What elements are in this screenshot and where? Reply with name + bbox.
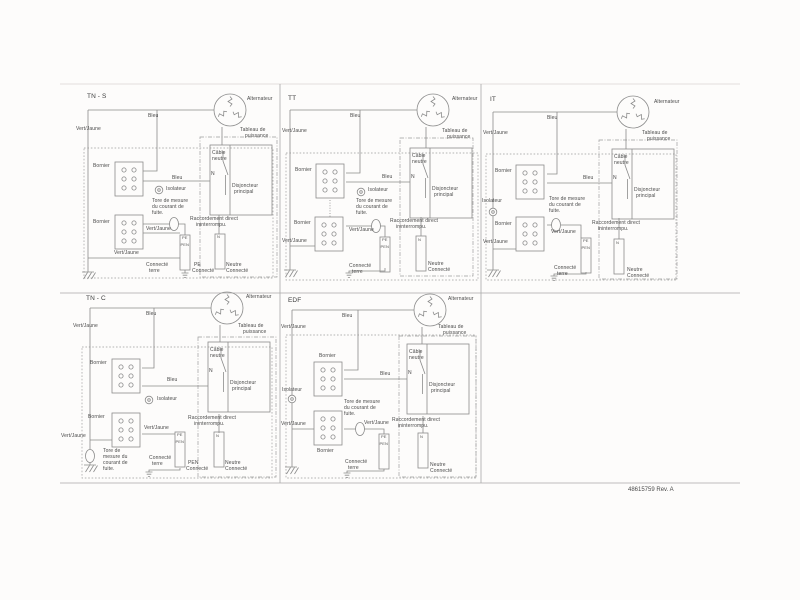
n-bar-label: N <box>616 241 619 245</box>
label-bleu: Bleu <box>146 312 156 318</box>
breaker-n-label: N <box>211 172 215 178</box>
pe-bar-label: PE <box>583 239 589 243</box>
label-vert-jaune: Vert/Jaune <box>281 325 306 331</box>
earth-icon <box>285 467 299 474</box>
n-bar-label: N <box>216 434 219 438</box>
cable-neutre-line2: neutre <box>212 157 227 163</box>
panel-title: TN - S <box>87 94 106 100</box>
breaker-label-line2: principal <box>232 387 252 393</box>
document-number: 48615759 Rev. A <box>628 487 674 493</box>
neutre-connecte-line2: Connecté <box>225 467 247 473</box>
label-vert-jaune: Vert/Jaune <box>483 240 508 246</box>
panel-tn-s: TN - S Alternateur Bleu Vert/Jaune Table… <box>60 84 280 293</box>
label-vert-jaune: Vert/Jaune <box>281 422 306 428</box>
bornier-label: Bornier <box>295 168 312 174</box>
label-vert-jaune: Vert/Jaune <box>483 131 508 137</box>
connecte-terre-line2: terre <box>152 462 163 468</box>
label-bleu: Bleu <box>382 175 392 181</box>
panel-tt: TT Alternateur Bleu Vert/Jaune Tableau d… <box>280 84 481 293</box>
connecte-terre-line2: terre <box>352 270 363 276</box>
bornier-label: Bornier <box>93 220 110 226</box>
raccordement-line2: ininterrompu. <box>398 424 428 430</box>
pe-bar-label: PE <box>177 433 183 437</box>
neutre-connecte-line2: Connecté <box>226 269 248 275</box>
pen-bar-label: PEN <box>381 245 390 249</box>
raccordement-line2: ininterrompu. <box>598 227 628 233</box>
panel-title: IT <box>490 97 496 103</box>
panel-title: TT <box>288 96 296 102</box>
alternator-icon <box>417 94 449 126</box>
label-bleu: Bleu <box>583 176 593 182</box>
installation-boundary <box>286 153 478 280</box>
isolator-label: Isolateur <box>482 199 502 205</box>
label-vert-jaune: Vert/Jaune <box>61 434 86 440</box>
terminal-block-icon <box>316 164 344 198</box>
label-bleu: Bleu <box>380 372 390 378</box>
cable-neutre-line2: neutre <box>412 160 427 166</box>
tableau-label-line2: puissance <box>243 330 266 336</box>
breaker-label-line2: principal <box>234 190 254 196</box>
wires <box>493 112 626 276</box>
isolator-label: Isolateur <box>157 397 177 403</box>
label-vert-jaune: Vert/Jaune <box>146 227 171 233</box>
alternator-icon <box>211 292 243 324</box>
toroid-label-line3: fuite. <box>152 211 163 217</box>
terminal-block-icon <box>115 162 143 196</box>
wires <box>88 110 222 273</box>
panel-edf: EDF Alternateur Bleu Vert/Jaune Tableau … <box>280 293 481 483</box>
pe-bar-icon <box>180 235 190 270</box>
toroid-label-line3: fuite. <box>344 412 355 418</box>
n-bar-label: N <box>217 235 220 239</box>
terminal-block-icon <box>112 413 140 447</box>
isolator-label: Isolateur <box>166 187 186 193</box>
it-drawing <box>481 84 740 293</box>
isolator-icon <box>288 395 296 403</box>
breaker-n-label: N <box>408 371 412 377</box>
pen-bar-icon <box>175 432 185 467</box>
terminal-block-icon <box>115 215 143 249</box>
ground-icon <box>182 273 189 277</box>
label-bleu: Bleu <box>342 314 352 320</box>
alternator-icon <box>617 96 649 128</box>
pe-bar-label: PE <box>382 238 388 242</box>
label-bleu: Bleu <box>172 176 182 182</box>
raccordement-line2: ininterrompu. <box>196 223 226 229</box>
panel-title: EDF <box>288 298 301 304</box>
connecte-terre-line2: terre <box>557 272 568 278</box>
alternator-label: Alternateur <box>654 100 680 106</box>
tableau-label-line2: puissance <box>647 137 670 143</box>
earth-icon <box>84 465 98 472</box>
neutre-connecte-line2: Connecté <box>430 469 452 475</box>
terminal-block-icon <box>314 411 342 445</box>
ground-icon <box>344 473 351 477</box>
tableau-box <box>400 138 473 276</box>
label-bleu: Bleu <box>167 378 177 384</box>
n-bar-label: N <box>420 435 423 439</box>
toroid-icon <box>86 450 95 463</box>
alternator-icon <box>414 294 446 326</box>
schematic-sheet: TN - S Alternateur Bleu Vert/Jaune Table… <box>0 0 800 600</box>
tableau-label-line2: puissance <box>443 331 466 337</box>
pe-bar-label: PE <box>381 435 387 439</box>
breaker-label-line2: principal <box>636 194 656 200</box>
isolator-icon <box>357 188 365 196</box>
isolator-label: Isolateur <box>282 388 302 394</box>
bornier-label: Bornier <box>93 164 110 170</box>
connecte-terre-line2: terre <box>348 466 359 472</box>
isolator-icon <box>155 186 163 194</box>
pen-bar-label: PEN <box>176 440 185 444</box>
installation-boundary <box>84 148 273 278</box>
label-vert-jaune: Vert/Jaune <box>349 228 374 234</box>
tableau-label-line2: puissance <box>245 134 268 140</box>
bornier-label: Bornier <box>317 449 334 455</box>
alternator-label: Alternateur <box>452 97 478 103</box>
alternator-label: Alternateur <box>448 297 474 303</box>
terminal-block-icon <box>516 165 544 199</box>
label-vert-jaune: Vert/Jaune <box>114 251 139 257</box>
pen-bar-label: PEN <box>380 442 389 446</box>
tableau-label-line2: puissance <box>447 135 470 141</box>
label-bleu: Bleu <box>148 114 158 120</box>
cable-neutre-line2: neutre <box>409 356 424 362</box>
n-bar-label: N <box>418 238 421 242</box>
bornier-label: Bornier <box>294 221 311 227</box>
breaker-n-label: N <box>411 175 415 181</box>
label-vert-jaune: Vert/Jaune <box>282 129 307 135</box>
pe-bar-icon <box>581 238 591 273</box>
panel-it: IT Alternateur Bleu Vert/Jaune Tableau d… <box>481 84 740 293</box>
ground-icon <box>146 472 153 476</box>
alternator-label: Alternateur <box>246 295 272 301</box>
toroid-label-line4: fuite. <box>103 467 114 473</box>
alternator-label: Alternateur <box>247 97 273 103</box>
pen-bar-label: PEN <box>181 243 190 247</box>
terminal-block-icon <box>516 217 544 251</box>
isolator-label: Isolateur <box>368 188 388 194</box>
label-vert-jaune: Vert/Jaune <box>364 421 389 427</box>
breaker-label-line2: principal <box>431 389 451 395</box>
pen-connecte-line2: Connecté <box>186 467 208 473</box>
alternator-icon <box>214 94 246 126</box>
connecte-terre-line2: terre <box>149 269 160 275</box>
neutre-connecte-line2: Connecté <box>627 274 649 280</box>
bornier-label: Bornier <box>88 415 105 421</box>
pe-bar-icon <box>379 434 389 469</box>
cable-neutre-line2: neutre <box>210 354 225 360</box>
pe-bar-icon <box>380 237 390 272</box>
raccordement-line2: ininterrompu. <box>194 422 224 428</box>
label-vert-jaune: Vert/Jaune <box>76 127 101 133</box>
neutral-bar-icon <box>215 234 225 269</box>
bornier-label: Bornier <box>495 222 512 228</box>
label-vert-jaune: Vert/Jaune <box>144 426 169 432</box>
pe-bar-label: PE <box>182 236 188 240</box>
label-vert-jaune: Vert/Jaune <box>73 324 98 330</box>
wires <box>292 310 423 473</box>
toroid-label-line3: fuite. <box>356 211 367 217</box>
raccordement-line2: ininterrompu. <box>396 225 426 231</box>
terminal-block-icon <box>112 359 140 393</box>
pe-connecte-line2: Connecté <box>192 269 214 275</box>
label-vert-jaune: Vert/Jaune <box>551 230 576 236</box>
neutre-connecte-line2: Connecté <box>428 268 450 274</box>
toroid-label-line3: fuite. <box>549 209 560 215</box>
bornier-label: Bornier <box>319 354 336 360</box>
pen-bar-label: PEN <box>582 246 591 250</box>
cable-neutre-line2: neutre <box>614 161 629 167</box>
terminal-block-icon <box>314 362 342 396</box>
terminal-block-icon <box>315 217 343 251</box>
label-vert-jaune: Vert/Jaune <box>282 239 307 245</box>
tableau-box <box>599 140 677 279</box>
installation-boundary <box>286 335 476 478</box>
isolator-icon <box>489 208 497 216</box>
label-bleu: Bleu <box>547 116 557 122</box>
earth-icon <box>487 270 501 277</box>
panel-title: TN - C <box>86 296 106 302</box>
panel-tn-c: TN - C Alternateur Bleu Vert/Jaune Table… <box>60 293 280 483</box>
bornier-label: Bornier <box>90 361 107 367</box>
breaker-label-line2: principal <box>434 193 454 199</box>
bornier-label: Bornier <box>495 169 512 175</box>
isolator-icon <box>145 396 153 404</box>
breaker-n-label: N <box>209 369 213 375</box>
breaker-n-label: N <box>613 176 617 182</box>
label-bleu: Bleu <box>350 114 360 120</box>
